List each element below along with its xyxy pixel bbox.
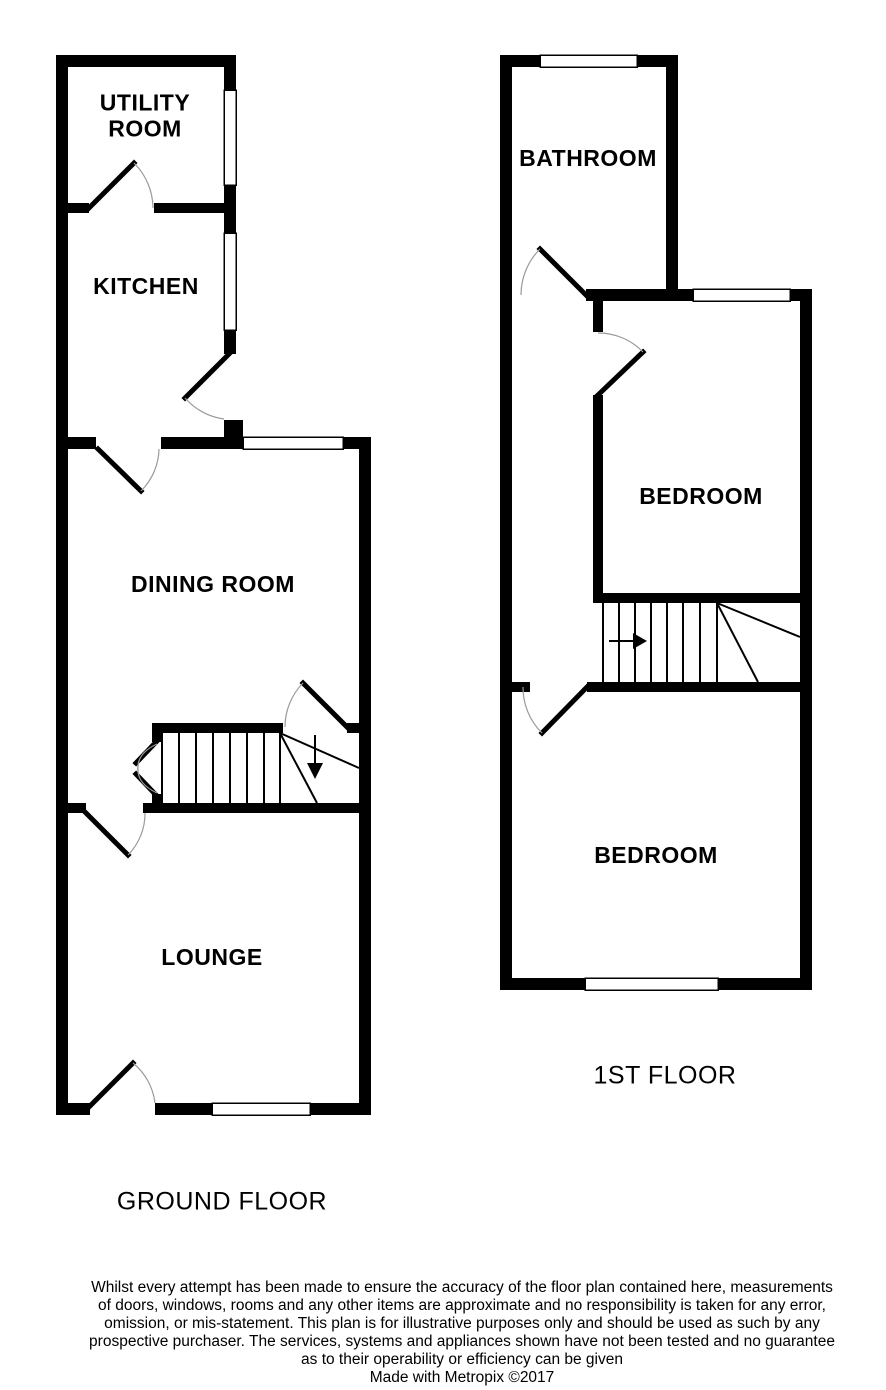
room-label-lounge: LOUNGE xyxy=(161,945,262,971)
kitchen-dining-door xyxy=(98,449,159,491)
dining-room-window xyxy=(243,437,343,449)
first-floor-staircase xyxy=(603,603,800,682)
stairs-bifold-door xyxy=(136,741,157,796)
room-label-kitchen: KITCHEN xyxy=(93,274,199,300)
bathroom-door xyxy=(521,249,586,295)
landing-bedroom-rear-door xyxy=(523,687,587,733)
floorplan-page: UTILITY ROOM KITCHEN DINING ROOM LOUNGE … xyxy=(0,0,886,1390)
bedroom-front-door xyxy=(598,333,643,395)
ground-floor-title: GROUND FLOOR xyxy=(117,1188,327,1217)
room-label-dining-room: DINING ROOM xyxy=(131,572,295,598)
disclaimer-line: prospective purchaser. The services, sys… xyxy=(72,1333,852,1351)
kitchen-window xyxy=(224,233,236,330)
ground-floor-staircase xyxy=(162,733,359,803)
stairs-up-arrow xyxy=(609,633,647,649)
hall-lounge-door xyxy=(86,813,145,855)
front-door xyxy=(90,1063,155,1106)
room-label-bedroom-front: BEDROOM xyxy=(639,484,763,510)
room-label-bedroom-rear: BEDROOM xyxy=(594,843,718,869)
bathroom-window xyxy=(540,55,637,67)
kitchen-back-door xyxy=(185,354,229,419)
disclaimer-text: Whilst every attempt has been made to en… xyxy=(72,1279,852,1387)
disclaimer-line: Whilst every attempt has been made to en… xyxy=(72,1279,852,1297)
dining-stairs-door xyxy=(285,683,347,727)
room-label-utility-room: UTILITY ROOM xyxy=(100,90,190,142)
utility-room-window xyxy=(224,90,236,185)
disclaimer-line: of doors, windows, rooms and any other i… xyxy=(72,1297,852,1315)
bedroom-front-window xyxy=(693,289,790,301)
utility-kitchen-door xyxy=(89,163,153,208)
lounge-window xyxy=(212,1103,310,1115)
bedroom-rear-window xyxy=(585,978,718,990)
first-floor-title: 1ST FLOOR xyxy=(594,1062,737,1091)
floorplan-drawing xyxy=(0,0,886,1390)
disclaimer-line: omission, or mis-statement. This plan is… xyxy=(72,1315,852,1333)
disclaimer-line: as to their operability or efficiency ca… xyxy=(72,1351,852,1369)
stairs-down-arrow xyxy=(307,735,323,779)
room-label-bathroom: BATHROOM xyxy=(519,146,657,172)
credit-line: Made with Metropix ©2017 xyxy=(72,1369,852,1387)
